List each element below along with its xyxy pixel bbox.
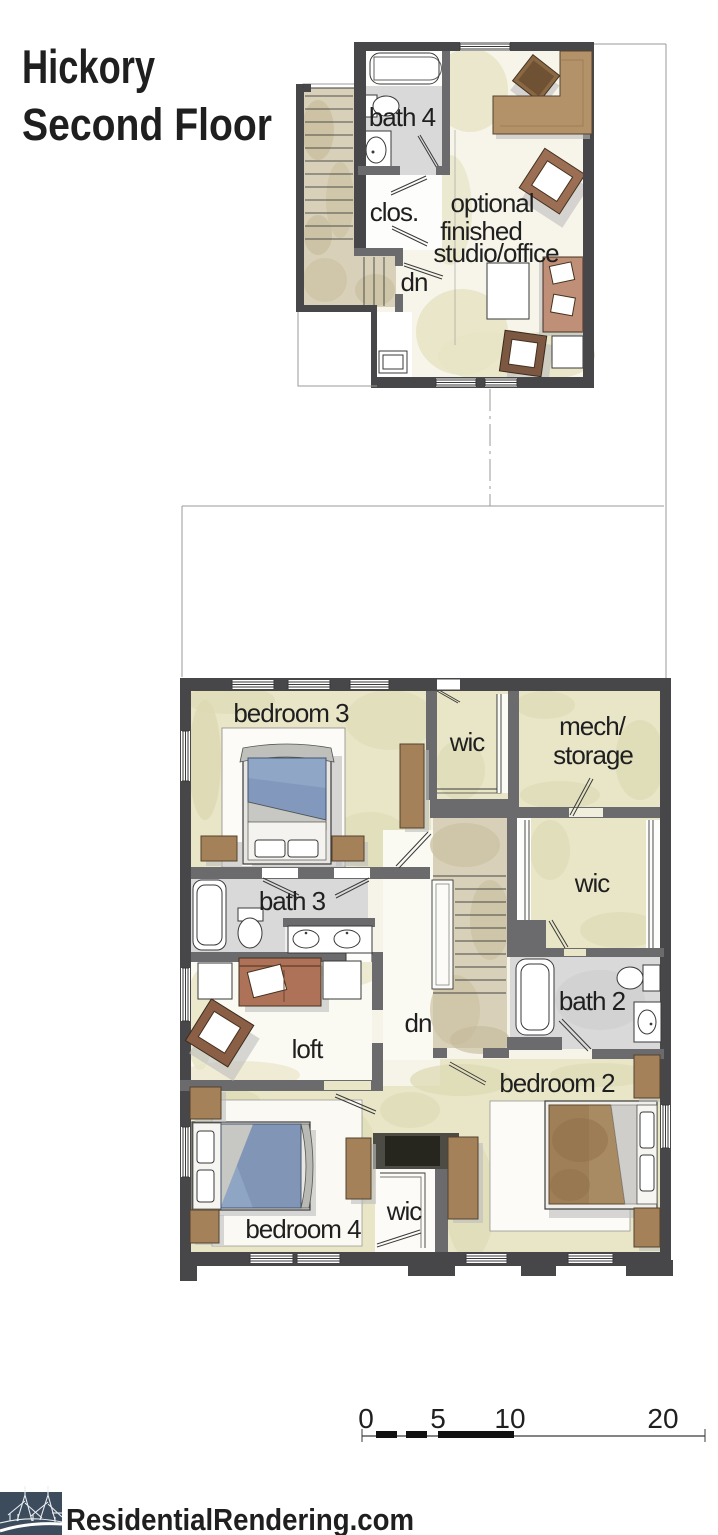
svg-text:10: 10	[494, 1403, 525, 1434]
svg-text:storage: storage	[553, 740, 633, 770]
svg-text:bath 2: bath 2	[559, 986, 626, 1016]
svg-text:bedroom 4: bedroom 4	[245, 1214, 361, 1244]
svg-text:bath 3: bath 3	[259, 886, 326, 916]
svg-text:optional: optional	[450, 188, 533, 218]
svg-text:wic: wic	[386, 1196, 423, 1226]
svg-text:clos.: clos.	[370, 197, 418, 227]
svg-text:dn: dn	[405, 1008, 432, 1038]
svg-text:mech/: mech/	[559, 711, 627, 741]
svg-text:20: 20	[647, 1403, 678, 1434]
svg-text:Second Floor: Second Floor	[22, 99, 272, 150]
svg-text:Hickory: Hickory	[22, 40, 155, 93]
svg-text:0: 0	[358, 1403, 374, 1434]
svg-text:studio/office: studio/office	[433, 238, 559, 268]
svg-text:bedroom 2: bedroom 2	[499, 1068, 615, 1098]
svg-text:5: 5	[430, 1403, 446, 1434]
svg-text:ResidentialRendering.com: ResidentialRendering.com	[66, 1502, 414, 1535]
svg-text:wic: wic	[449, 727, 486, 757]
svg-text:loft: loft	[292, 1034, 324, 1064]
svg-text:bath 4: bath 4	[369, 102, 436, 132]
svg-text:wic: wic	[574, 868, 611, 898]
svg-text:dn: dn	[401, 267, 428, 297]
svg-text:bedroom 3: bedroom 3	[233, 698, 349, 728]
